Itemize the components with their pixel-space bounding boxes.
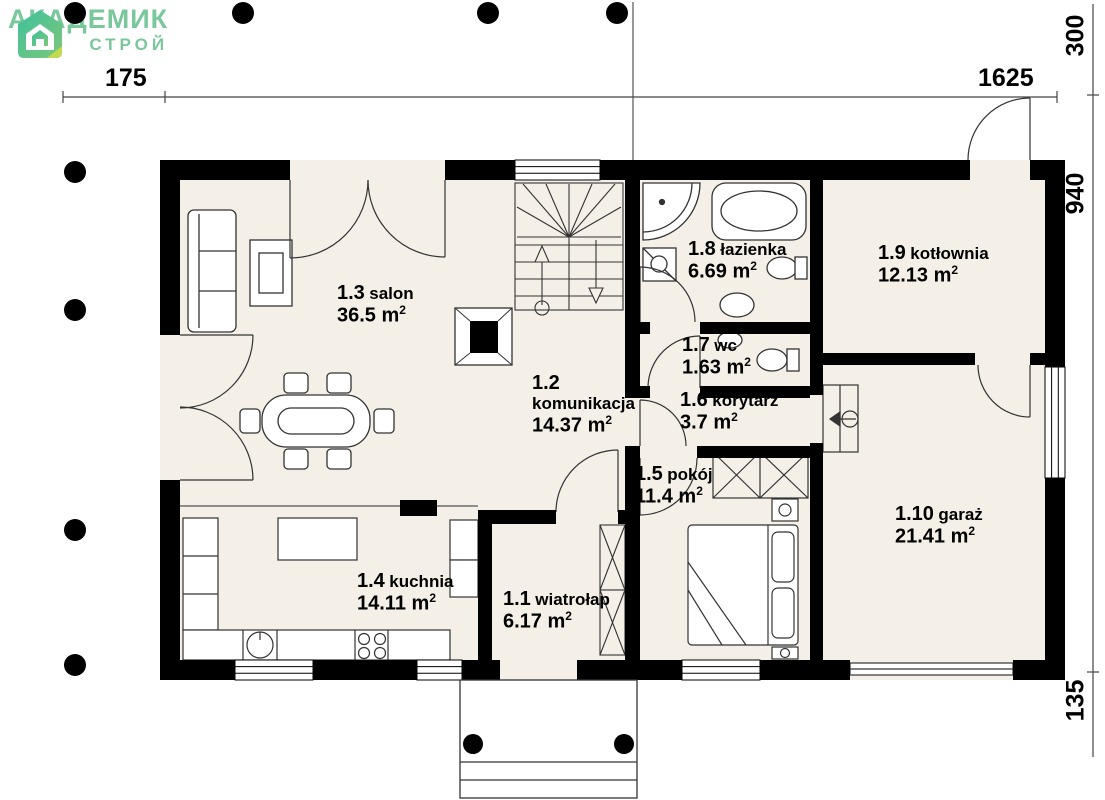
room-label-wc: 1.7 wc 1.63 m2 xyxy=(682,334,751,379)
tall-unit xyxy=(450,520,478,560)
kitchen-island xyxy=(278,518,357,560)
floor-plan-canvas: АКАДЕМИК СТРОЙ xyxy=(0,0,1105,800)
chair xyxy=(374,409,394,433)
bedroom-window xyxy=(682,660,760,680)
kitchen-counter-left xyxy=(183,518,218,630)
porch-column xyxy=(614,734,634,754)
wc-toilet xyxy=(757,349,787,371)
chair xyxy=(240,409,260,433)
chair xyxy=(327,449,351,469)
room-label-garaz: 1.10 garaż 21.41 m2 xyxy=(895,503,983,548)
room-label-korytarz: 1.6 korytarz 3.7 m2 xyxy=(680,389,778,434)
kitchen-counter-bottom xyxy=(183,630,450,660)
tall-unit xyxy=(450,560,478,597)
dim-top-right: 1625 xyxy=(978,64,1034,93)
pillow xyxy=(772,588,794,638)
boiler-room-ext-door xyxy=(968,98,1030,160)
sofa xyxy=(188,210,236,332)
chair xyxy=(327,373,351,393)
dim-right-135: 135 xyxy=(1062,661,1091,741)
room-label-lazienka: 1.8 łazienka 6.69 m2 xyxy=(688,238,786,283)
pillow xyxy=(772,532,794,582)
room-label-kuchnia: 1.4 kuchnia 14.11 m2 xyxy=(357,570,454,615)
room-label-wiatrolap: 1.1 wiatrołap 6.17 m2 xyxy=(503,588,610,633)
room-label-pokoj: 1.5 pokój 11.4 m2 xyxy=(635,463,713,508)
room-label-kotlownia: 1.9 kotłownia 12.13 m2 xyxy=(878,242,989,287)
kitchen-window-2 xyxy=(417,660,462,680)
dim-right-300: 300 xyxy=(1062,0,1091,76)
room-label-komunikacja: 1.2 komunikacja 14.37 m2 xyxy=(532,372,636,437)
chair xyxy=(284,449,308,469)
garage-window xyxy=(1045,367,1065,478)
dim-right-940: 940 xyxy=(1062,154,1091,234)
fireplace xyxy=(455,308,512,365)
stair-window xyxy=(515,160,600,180)
porch-column xyxy=(463,734,483,754)
kitchen-window-1 xyxy=(235,660,313,680)
washbasin xyxy=(720,293,754,317)
chair xyxy=(284,373,308,393)
staircase xyxy=(515,183,623,315)
entrance-porch xyxy=(460,680,637,798)
room-label-salon: 1.3 salon 36.5 m2 xyxy=(337,282,414,327)
dim-top-left: 175 xyxy=(105,64,147,93)
